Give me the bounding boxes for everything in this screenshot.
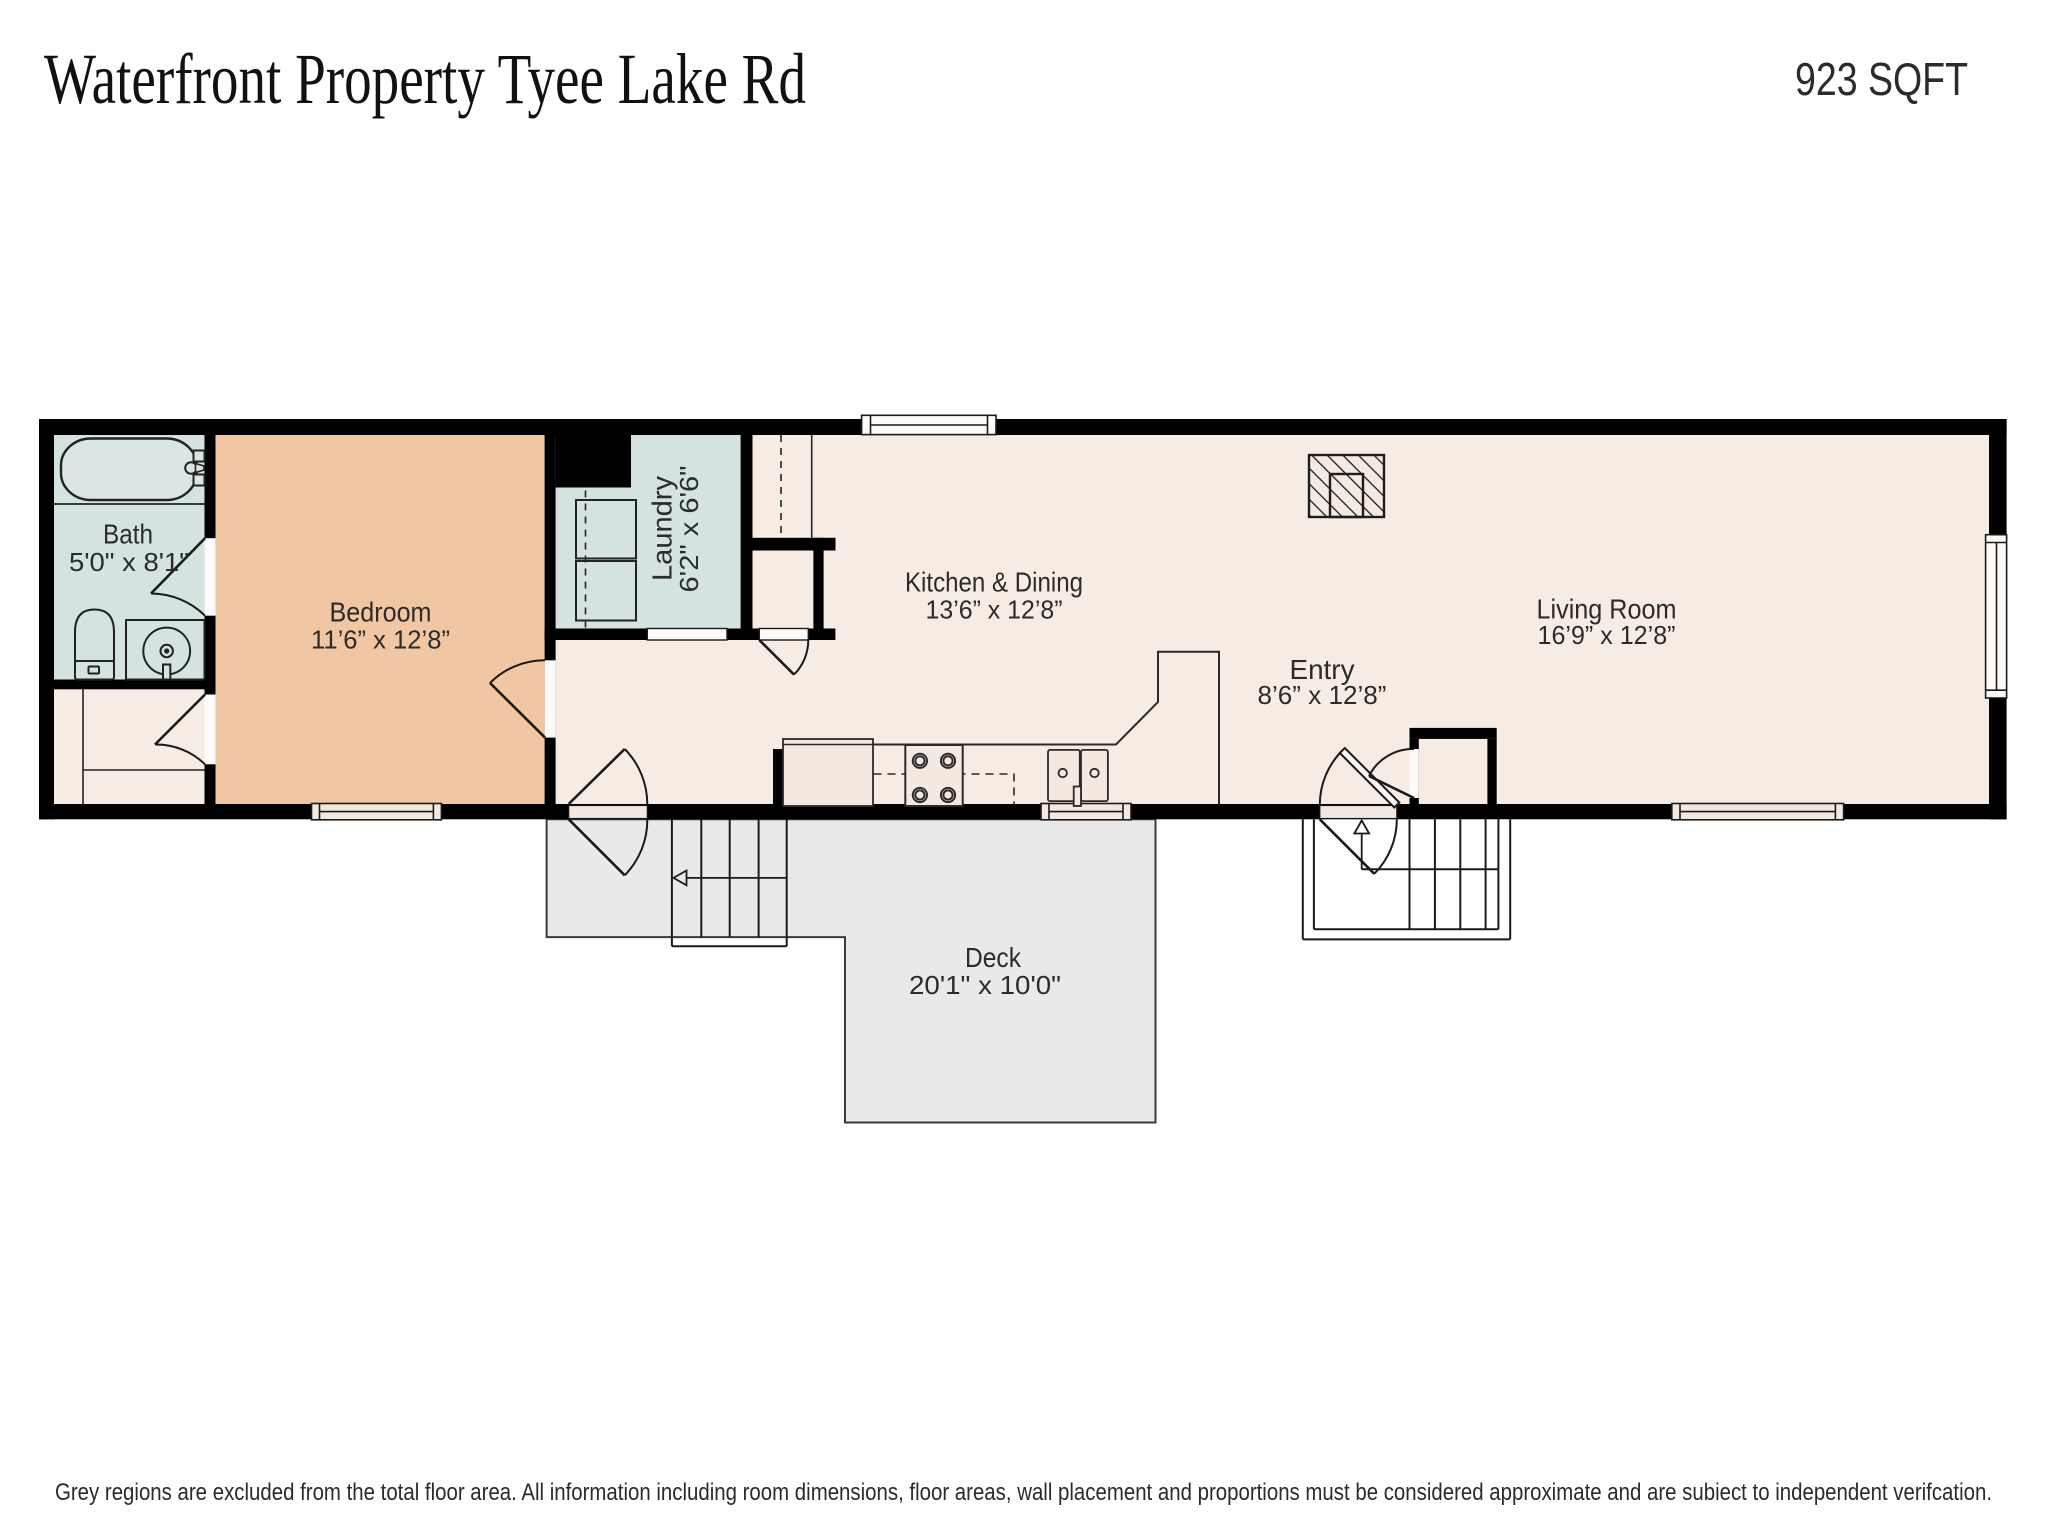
svg-text:Kitchen & Dining: Kitchen & Dining (905, 567, 1083, 598)
svg-text:Bedroom: Bedroom (330, 597, 432, 628)
svg-text:Waterfront Property Tyee Lake: Waterfront Property Tyee Lake Rd (44, 39, 806, 119)
svg-text:6'2" x 6'6": 6'2" x 6'6" (674, 466, 704, 593)
svg-text:20'1" x 10'0": 20'1" x 10'0" (909, 970, 1061, 1000)
svg-text:Deck: Deck (965, 942, 1022, 973)
svg-text:Grey regions are excluded from: Grey regions are excluded from the total… (55, 1479, 1992, 1506)
svg-text:16’9” x 12’8”: 16’9” x 12’8” (1538, 620, 1676, 650)
svg-text:13’6” x 12’8”: 13’6” x 12’8” (926, 595, 1063, 625)
svg-text:Laundry: Laundry (647, 476, 678, 581)
svg-text:923 SQFT: 923 SQFT (1795, 53, 1968, 105)
svg-text:11’6” x 12’8”: 11’6” x 12’8” (311, 625, 450, 655)
svg-text:Bath: Bath (103, 519, 153, 550)
svg-text:8’6” x 12’8”: 8’6” x 12’8” (1258, 680, 1387, 710)
svg-text:5'0" x 8'1": 5'0" x 8'1" (69, 547, 189, 577)
